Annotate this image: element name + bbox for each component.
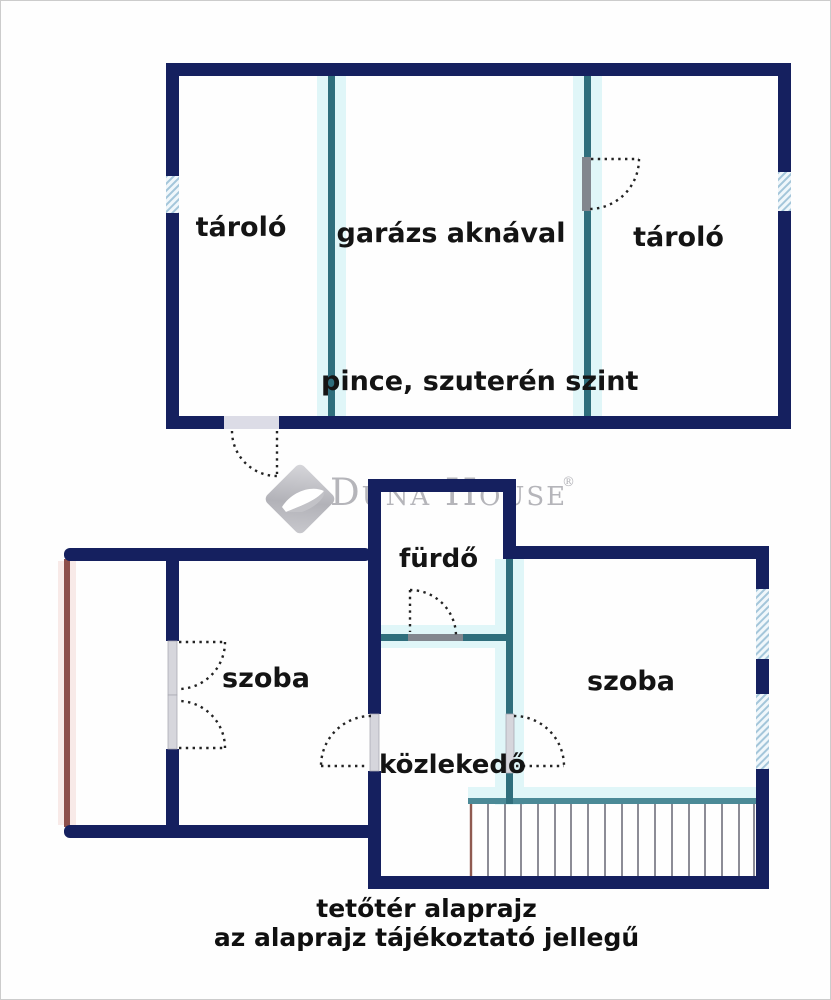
wall-right-seg1 [756,546,769,589]
door-leaf [168,641,177,695]
wall-bottom-left [64,825,377,838]
upper-plan [166,63,791,476]
door-leaf [168,695,177,749]
room-label-garage: garázs aknával [336,219,566,249]
window-left [166,176,179,213]
room-label-storage-left: tároló [161,213,321,243]
window-upper [756,589,769,659]
wall-bottom-right [368,876,769,889]
room-divider-upper [166,548,179,641]
wall-top-left [64,548,371,561]
double-door-swing [179,642,225,748]
door-leaf [408,634,463,641]
door-leaf [582,157,591,211]
caption: tetőtér alaprajz az alaprajz tájékoztató… [21,894,831,953]
room-label-hallway: közlekedő [379,751,519,780]
window-lower [756,694,769,769]
floor-plan-canvas: Duna House ® [0,0,831,1000]
partition-wall [584,76,591,416]
caption-line-attic: tetőtér alaprajz [21,894,831,923]
wall-right-upper [778,63,791,172]
room-divider-lower [166,749,179,838]
wall-top [166,63,791,76]
room-label-room-left: szoba [191,664,341,694]
wall-right-lower [778,211,791,429]
wall-top-right [503,546,769,559]
partition-wall [328,76,335,416]
wall-left-lower [166,213,179,429]
hall-left-door-swing [321,716,371,766]
wall-right-seg3 [756,769,769,889]
room-label-room-right: szoba [556,667,706,697]
door-swing-exterior [232,431,277,476]
terrace-edge-line [64,559,70,827]
wall-bottom-right [279,416,791,429]
caption-line-disclaimer: az alaprajz tájékoztató jellegű [21,923,831,952]
floor-plan-drawing [1,1,831,1000]
level-label-basement: pince, szuterén szint [321,367,583,397]
stair-treads [488,804,754,876]
room-label-storage-right: tároló [601,223,756,253]
wall-right-seg2 [756,659,769,694]
window-right [778,172,791,211]
hall-wall-lower [368,771,381,889]
wall-left-upper [166,63,179,176]
bath-wall-top [368,479,516,492]
room-label-bathroom: fürdő [376,545,501,574]
door-leaf [370,714,379,771]
door-opening [224,416,279,429]
